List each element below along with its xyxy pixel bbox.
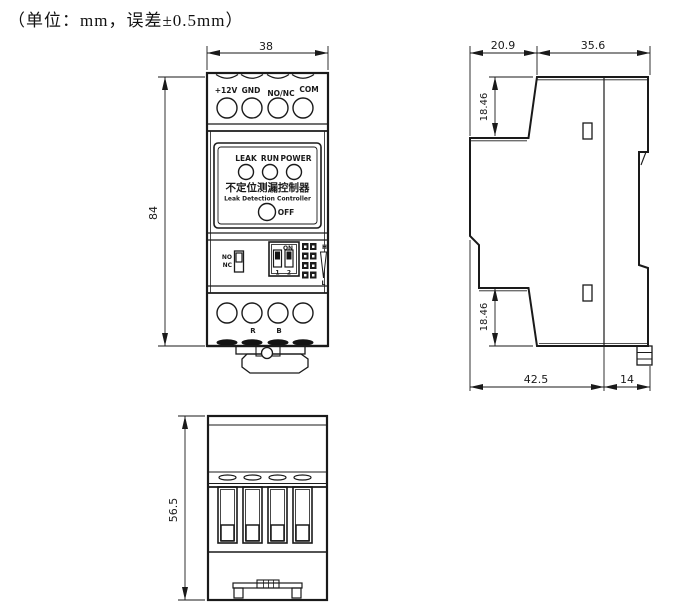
terminal-screw (268, 303, 288, 323)
dim-side-bottom: 42.5 14 (470, 240, 650, 391)
terminal-screw (293, 98, 313, 118)
terminal-label-b: B (276, 327, 281, 335)
terminal-label-gnd: GND (242, 86, 261, 95)
terminal-screw (217, 98, 237, 118)
dim-front-width: 38 (207, 40, 328, 70)
dim-label-20-9: 20.9 (491, 39, 516, 52)
dim-label-42-5: 42.5 (524, 373, 549, 386)
relay-label-no: NO (222, 254, 232, 261)
side-profile-outline (470, 77, 648, 346)
relay-switch-handle (236, 253, 242, 262)
led-power (287, 165, 302, 180)
relay-label-nc: NC (223, 262, 233, 269)
terminal-label-nonc: NO/NC (267, 89, 295, 98)
terminal-screw (217, 303, 237, 323)
dim-label-18-46-lower: 18.46 (479, 303, 490, 332)
front-view: +12V GND NO/NC COM LEAK RUN POWER 不定位测漏控… (147, 40, 328, 373)
dip-handle-2 (287, 252, 292, 260)
led-run (263, 165, 278, 180)
drawing-canvas: +12V GND NO/NC COM LEAK RUN POWER 不定位测漏控… (0, 0, 687, 611)
dip-pos1-label: 1 (275, 270, 279, 277)
dim-side-upper-step: 18.46 (479, 77, 533, 136)
dim-label-84: 84 (147, 206, 160, 220)
off-button-label: OFF (278, 208, 295, 217)
top-terminal-notches (216, 75, 314, 79)
sensitivity-high-label: H (322, 244, 327, 251)
terminal-screw (268, 98, 288, 118)
rail-latch-hook (641, 152, 646, 165)
device-name-cn: 不定位测漏控制器 (226, 181, 310, 194)
side-din-clip (637, 346, 652, 365)
sensitivity-switch-squares (302, 243, 317, 279)
device-name-en: Leak Detection Controller (224, 196, 311, 203)
terminal-label-com: COM (299, 85, 318, 94)
dim-side-top: 20.9 35.6 (470, 39, 650, 136)
dip-pos2-label: 2 (287, 270, 291, 277)
terminal-screw (293, 303, 313, 323)
terminal-channels (218, 487, 312, 543)
dim-label-35-6: 35.6 (581, 39, 606, 52)
din-clip-body (242, 354, 308, 373)
bottom-din-clip (233, 580, 302, 598)
dim-label-14: 14 (620, 373, 634, 386)
side-vent-slot (583, 285, 592, 301)
dim-front-height: 84 (147, 77, 205, 346)
dim-label-56-5: 56.5 (167, 498, 180, 523)
bottom-wire-lenses (217, 339, 314, 345)
terminal-label-r: R (250, 327, 256, 335)
terminal-label-12v: +12V (215, 86, 238, 95)
side-view: 20.9 35.6 18.46 18.46 42 (470, 39, 652, 391)
sensitivity-block: H L (302, 243, 327, 287)
dim-label-38: 38 (259, 40, 273, 53)
led-label-leak: LEAK (235, 154, 258, 163)
sensitivity-arrow-icon (321, 252, 327, 278)
bottom-view: 56.5 (167, 416, 327, 600)
led-label-run: RUN (261, 154, 279, 163)
led-leak (239, 165, 254, 180)
off-button (259, 204, 276, 221)
side-vent-slot (583, 123, 592, 139)
dim-bottom-height: 56.5 (167, 416, 205, 600)
wire-entry-slots (219, 475, 311, 480)
dim-side-lower-step: 18.46 (479, 288, 533, 346)
dip-handle-1 (275, 252, 280, 260)
led-label-power: POWER (280, 154, 311, 163)
dim-label-18-46-upper: 18.46 (479, 93, 490, 122)
terminal-screw (242, 98, 262, 118)
engineering-drawing-page: （单位：mm，误差±0.5mm） +12V GND NO/NC COM (0, 0, 687, 611)
terminal-screw (242, 303, 262, 323)
din-clip-pivot (262, 348, 273, 359)
